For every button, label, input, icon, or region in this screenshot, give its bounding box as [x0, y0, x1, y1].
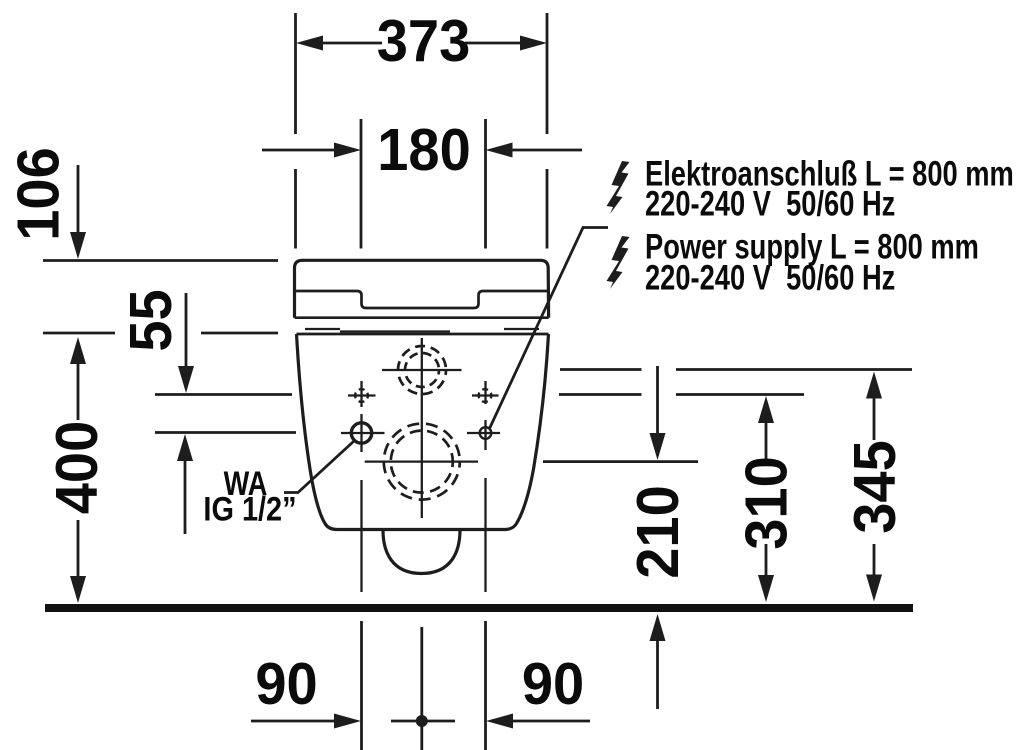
svg-text:210: 210	[626, 485, 692, 579]
svg-text:220-240 V 50/60 Hz: 220-240 V 50/60 Hz	[645, 184, 895, 223]
svg-text:373: 373	[377, 9, 471, 75]
svg-text:55: 55	[119, 289, 185, 351]
svg-text:90: 90	[255, 652, 317, 718]
svg-text:106: 106	[6, 147, 72, 241]
svg-text:90: 90	[522, 652, 584, 718]
svg-text:345: 345	[843, 440, 909, 534]
svg-text:400: 400	[45, 421, 111, 515]
svg-text:180: 180	[377, 118, 471, 184]
svg-text:IG 1/2”: IG 1/2”	[203, 489, 296, 528]
svg-text:310: 310	[734, 456, 800, 550]
svg-text:220-240 V 50/60 Hz: 220-240 V 50/60 Hz	[645, 258, 895, 297]
